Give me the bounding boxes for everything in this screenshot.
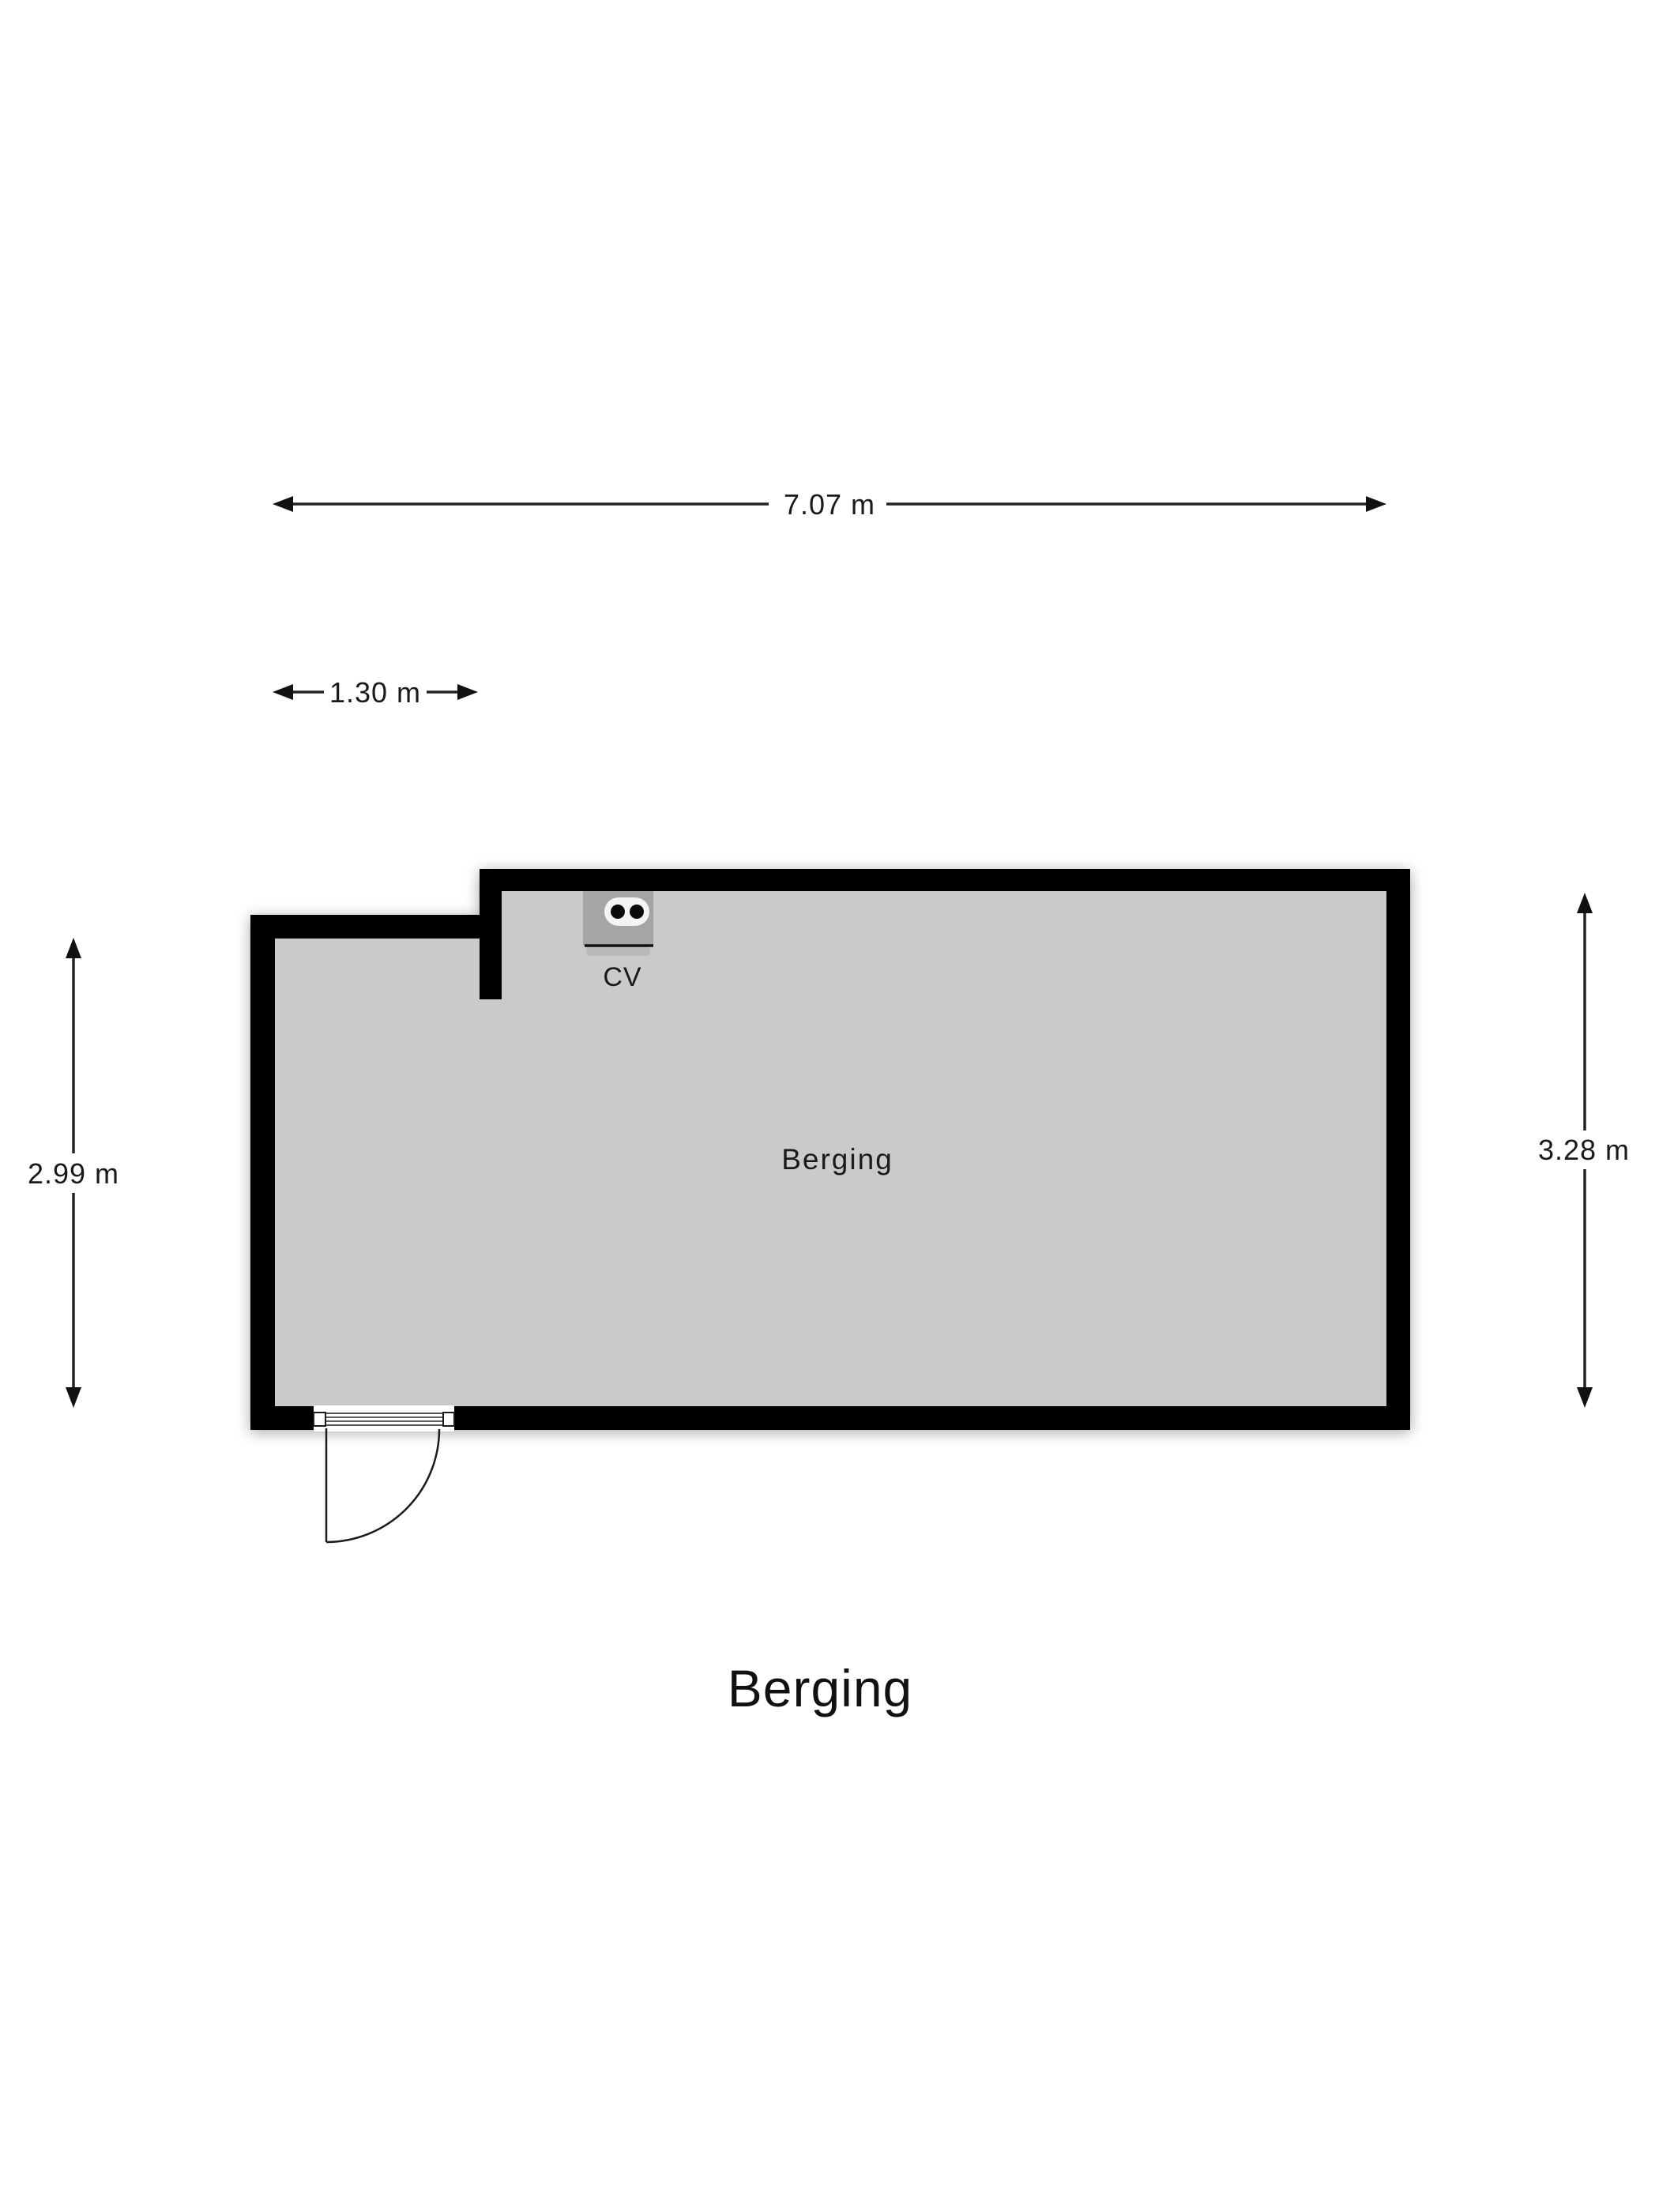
cv-unit-flap: [586, 946, 650, 956]
door-jamb-right: [443, 1413, 454, 1426]
arrow-down-icon: [1577, 1387, 1593, 1408]
arrow-left-icon: [273, 684, 293, 700]
dimension-left: 2.99 m: [28, 938, 119, 1408]
floorplan-page: CV Berging 7.07 m: [0, 0, 1659, 2212]
cv-label: CV: [603, 962, 641, 992]
arrow-right-icon: [1366, 496, 1386, 512]
cv-socket-dot-left: [611, 905, 625, 919]
floorplan-canvas: CV Berging 7.07 m: [0, 0, 1659, 2212]
arrow-down-icon: [66, 1387, 81, 1408]
dimension-right: 3.28 m: [1538, 893, 1630, 1408]
cv-socket-dot-right: [630, 905, 644, 919]
door-threshold: [325, 1413, 443, 1425]
dimension-inner-left: 1.30 m: [273, 676, 478, 709]
page-title: Berging: [728, 1659, 913, 1717]
dimension-inner-left-label: 1.30 m: [329, 676, 421, 709]
dimension-left-label: 2.99 m: [28, 1157, 119, 1190]
door-swing-arc: [326, 1429, 439, 1542]
room-label: Berging: [781, 1143, 893, 1176]
arrow-up-icon: [66, 938, 81, 958]
arrow-left-icon: [273, 496, 293, 512]
dimension-top: 7.07 m: [273, 488, 1386, 521]
door: [314, 1405, 454, 1542]
dimension-right-label: 3.28 m: [1538, 1134, 1630, 1166]
arrow-right-icon: [457, 684, 478, 700]
dimension-top-label: 7.07 m: [784, 488, 875, 521]
door-jamb-left: [314, 1413, 325, 1426]
arrow-up-icon: [1577, 893, 1593, 913]
